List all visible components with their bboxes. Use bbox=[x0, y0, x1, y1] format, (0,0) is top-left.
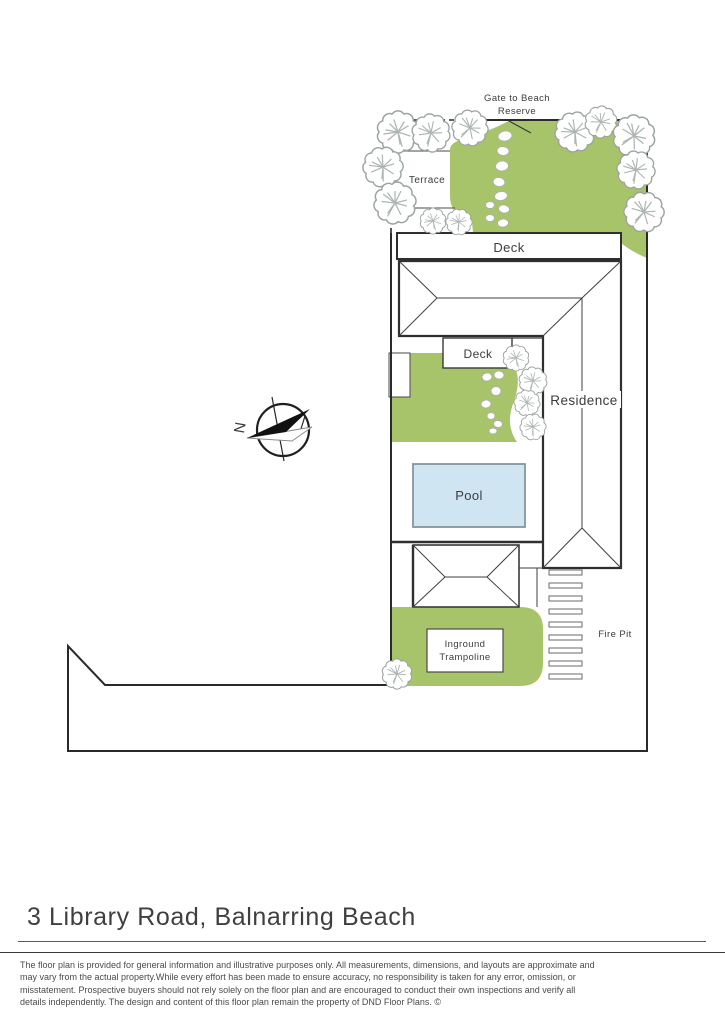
garage-roof bbox=[413, 545, 543, 607]
trampoline-box: Inground Trampoline bbox=[427, 629, 503, 672]
disclaimer-line: The floor plan is provided for general i… bbox=[20, 959, 720, 971]
fire-pit-steps bbox=[549, 570, 582, 679]
compass: N bbox=[231, 397, 312, 461]
page-title: 3 Library Road, Balnarring Beach bbox=[27, 903, 416, 932]
disclaimer-divider bbox=[0, 952, 725, 953]
lower-deck-label: Deck bbox=[464, 347, 494, 361]
gate-label-line1: Gate to Beach bbox=[484, 93, 550, 104]
bush-icon bbox=[503, 345, 528, 371]
disclaimer-line: details independently. The design and co… bbox=[20, 996, 720, 1008]
pool-courtyard bbox=[391, 464, 543, 542]
disclaimer-line: misstatement. Prospective buyers should … bbox=[20, 984, 720, 996]
trampoline-label-line2: Trampoline bbox=[439, 652, 490, 663]
title-underline bbox=[18, 941, 706, 942]
disclaimer-line: may vary from the actual property.While … bbox=[20, 971, 720, 983]
residence-label: Residence bbox=[550, 393, 617, 408]
fire-pit-label: Fire Pit bbox=[598, 629, 631, 640]
trampoline-label-line1: Inground bbox=[445, 639, 486, 650]
site-plan: N Inground Trampoline Gate to Beach Rese… bbox=[0, 0, 725, 1024]
side-structure bbox=[389, 353, 410, 397]
pool-label: Pool bbox=[455, 488, 483, 503]
compass-north-label: N bbox=[231, 421, 250, 435]
tree-icon bbox=[420, 208, 445, 234]
gate-label-line2: Reserve bbox=[498, 106, 536, 117]
disclaimer: The floor plan is provided for general i… bbox=[20, 959, 720, 1009]
terrace-label: Terrace bbox=[409, 175, 445, 186]
floor-plan-page: N Inground Trampoline Gate to Beach Rese… bbox=[0, 0, 725, 1024]
upper-deck-label: Deck bbox=[493, 240, 524, 255]
